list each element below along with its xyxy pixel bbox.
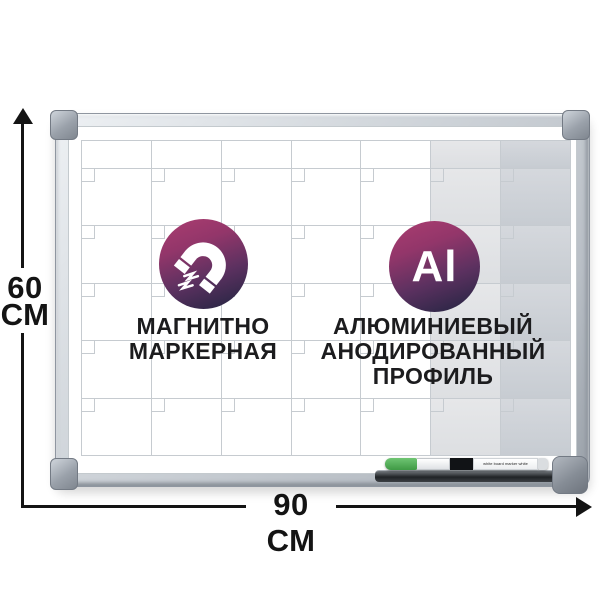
corner-cap-bottom-left — [50, 458, 78, 490]
grid-cell — [431, 399, 501, 456]
grid-cell — [82, 226, 152, 283]
marker-label: white board marker white — [473, 458, 538, 470]
date-square — [361, 284, 374, 297]
date-square — [361, 226, 374, 239]
date-square — [222, 169, 235, 182]
arrow-right-icon — [576, 497, 592, 517]
grid-cell — [222, 141, 292, 169]
al-badge-text: Al — [412, 242, 458, 292]
dimension-line — [21, 121, 24, 268]
board-grid — [81, 140, 571, 456]
dimension-line — [21, 333, 24, 508]
grid-cell — [501, 141, 571, 169]
marker-grip — [450, 458, 473, 470]
whiteboard-frame — [55, 113, 590, 487]
date-square — [152, 284, 165, 297]
grid-cell — [152, 399, 222, 456]
date-square — [82, 399, 95, 412]
date-square — [501, 169, 514, 182]
date-square — [82, 226, 95, 239]
grid-cell — [501, 169, 571, 226]
caption-line: ПРОФИЛЬ — [306, 364, 560, 389]
caption-line: МАГНИТНО — [103, 314, 303, 339]
date-square — [222, 399, 235, 412]
grid-cell — [82, 169, 152, 226]
caption-line: АЛЮМИНИЕВЫЙ — [306, 314, 560, 339]
date-square — [501, 399, 514, 412]
date-square — [152, 399, 165, 412]
date-square — [152, 169, 165, 182]
date-square — [292, 284, 305, 297]
corner-cap-top-right — [562, 110, 590, 140]
grid-cell — [82, 399, 152, 456]
marker-body — [417, 458, 450, 470]
date-square — [82, 169, 95, 182]
caption-line: АНОДИРОВАННЫЙ — [306, 339, 560, 364]
marker: white board marker white — [385, 458, 548, 470]
date-square — [431, 399, 444, 412]
magnetic-caption: МАГНИТНО МАРКЕРНАЯ — [103, 314, 303, 364]
grid-cell — [292, 169, 362, 226]
magnet-badge — [159, 219, 248, 309]
marker-end — [538, 458, 548, 470]
date-square — [501, 226, 514, 239]
date-square — [82, 341, 95, 354]
grid-cell — [292, 399, 362, 456]
spark-icon — [178, 273, 197, 288]
grid-cell — [431, 141, 501, 169]
dimension-width-label: 90 СМ — [246, 487, 336, 559]
dimension-line — [336, 505, 577, 508]
grid-cell — [361, 399, 431, 456]
date-square — [292, 399, 305, 412]
caption-line: МАРКЕРНАЯ — [103, 339, 303, 364]
grid-cell — [222, 399, 292, 456]
date-square — [82, 284, 95, 297]
date-square — [431, 169, 444, 182]
grid-cell — [501, 226, 571, 283]
date-square — [361, 399, 374, 412]
corner-cap-top-left — [50, 110, 78, 140]
dimension-line — [21, 505, 246, 508]
grid-cell — [431, 169, 501, 226]
corner-cap-bottom-right — [552, 456, 588, 494]
aluminum-badge: Al — [389, 221, 480, 312]
date-square — [501, 284, 514, 297]
grid-cell — [292, 141, 362, 169]
date-square — [292, 226, 305, 239]
date-square — [292, 169, 305, 182]
grid-cell — [361, 141, 431, 169]
marker-tray — [375, 470, 563, 482]
marker-cap — [385, 458, 417, 470]
grid-cell — [361, 169, 431, 226]
grid-cell — [82, 141, 152, 169]
grid-cell — [292, 226, 362, 283]
magnet-icon — [166, 226, 242, 302]
height-unit: СМ — [0, 301, 50, 328]
aluminum-caption: АЛЮМИНИЕВЫЙ АНОДИРОВАННЫЙ ПРОФИЛЬ — [306, 314, 560, 389]
grid-cell — [222, 169, 292, 226]
grid-cell — [501, 399, 571, 456]
grid-cell — [152, 141, 222, 169]
date-square — [361, 169, 374, 182]
dimension-height-label: 60 СМ — [0, 274, 50, 328]
date-square — [152, 226, 165, 239]
board-surface — [68, 126, 577, 474]
grid-cell — [152, 169, 222, 226]
